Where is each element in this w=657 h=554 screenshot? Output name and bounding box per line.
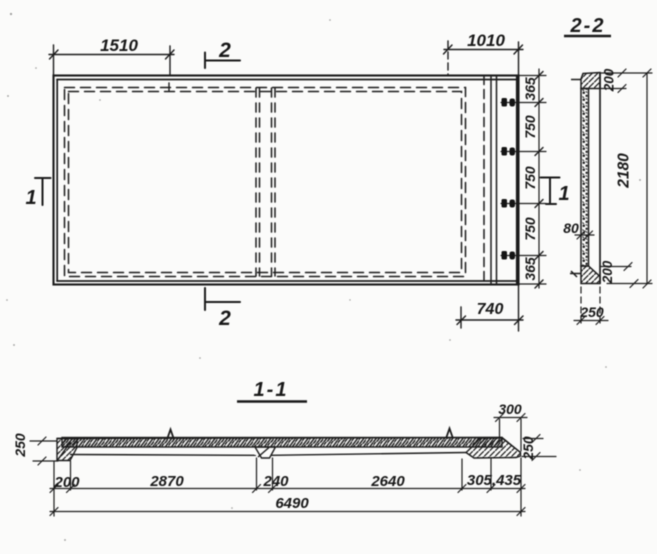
svg-text:750: 750 [522,115,538,139]
svg-text:1: 1 [558,183,569,205]
svg-text:1010: 1010 [467,31,505,50]
svg-text:2870: 2870 [149,473,184,490]
svg-text:300: 300 [498,401,522,417]
svg-text:200: 200 [600,260,615,284]
svg-text:750: 750 [522,166,538,190]
svg-text:240: 240 [262,473,289,490]
svg-text:2640: 2640 [370,473,405,490]
svg-text:365: 365 [522,257,538,281]
svg-text:1510: 1510 [100,36,138,55]
svg-text:2-2: 2-2 [570,15,606,37]
svg-text:1-1: 1-1 [254,379,289,401]
svg-text:305,435: 305,435 [467,472,522,489]
svg-text:250: 250 [12,433,28,458]
svg-text:1: 1 [25,187,36,209]
svg-text:250: 250 [520,436,536,461]
svg-text:740: 740 [477,301,504,318]
svg-text:2: 2 [218,307,231,330]
svg-text:80: 80 [563,220,579,236]
svg-text:200: 200 [53,474,80,491]
svg-text:2180: 2180 [616,153,633,189]
svg-text:365: 365 [522,77,538,101]
svg-text:2: 2 [218,39,231,62]
svg-text:250: 250 [579,304,604,320]
svg-text:200: 200 [602,68,617,92]
svg-text:6490: 6490 [275,495,309,512]
svg-text:750: 750 [522,217,538,241]
